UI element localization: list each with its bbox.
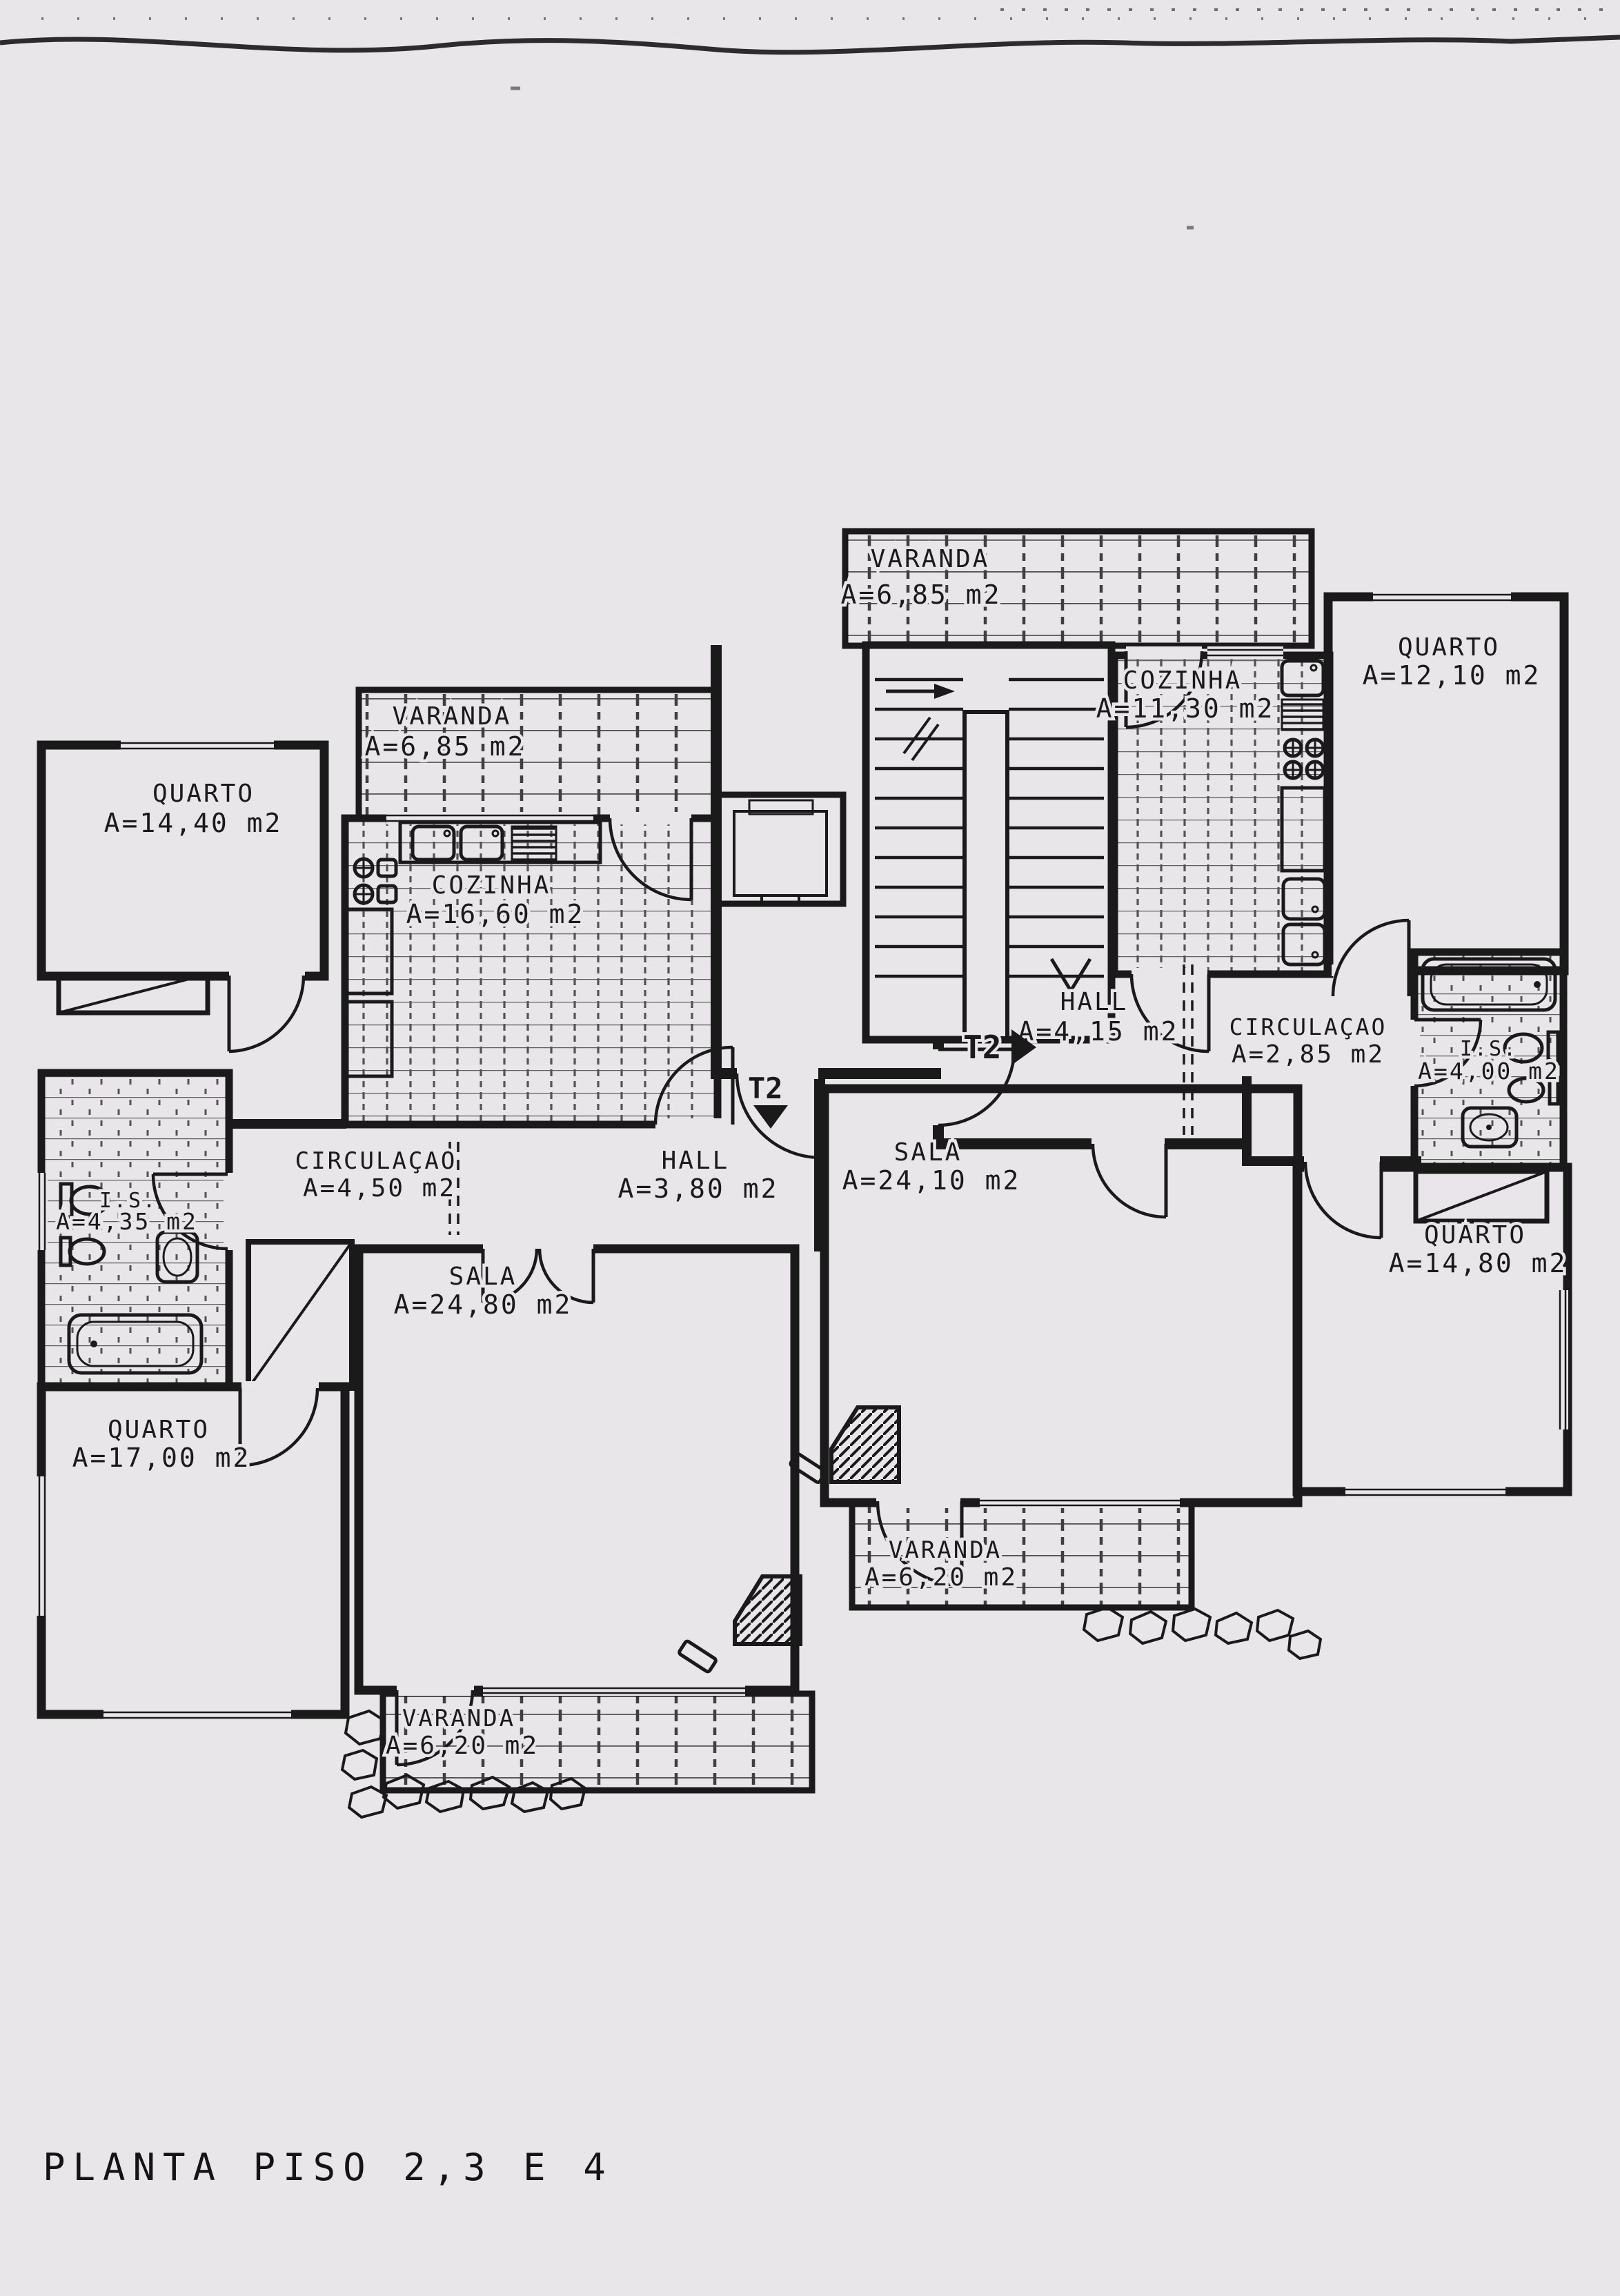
label-sala-left-name: SALA	[449, 1263, 517, 1291]
circ-right-left-wall	[1242, 1076, 1252, 1166]
bathtub-drain-left	[90, 1340, 97, 1347]
scan-edge-line	[0, 37, 1620, 52]
label-varanda-bottom-left-name: VARANDA	[402, 1705, 515, 1732]
label-sala-right-area: A=24,10 m2	[842, 1165, 1021, 1196]
chimney-sala-right	[790, 1407, 899, 1483]
label-quarto-right-area: A=14,80 m2	[1389, 1248, 1568, 1278]
elevator-car	[734, 811, 827, 895]
circ-right-bottom-wall-a	[1242, 1156, 1304, 1166]
closet-quarto-right-diagonal	[1416, 1171, 1547, 1221]
label-sala-right-name: SALA	[894, 1138, 962, 1167]
label-hall-right-area: A=4,15 m2	[1018, 1016, 1179, 1047]
label-circulacao-left-name: CIRCULAÇAO	[295, 1147, 457, 1175]
label-sala-left-area: A=24,80 m2	[394, 1289, 573, 1320]
closet-sala-left-diagonal	[248, 1242, 352, 1388]
door-quarto-right	[1305, 1162, 1381, 1238]
stair-treads-right-flight	[1009, 680, 1104, 976]
stair-up-arrow-head	[934, 684, 955, 699]
vent-left	[678, 1641, 717, 1673]
door-quarto-bottom-left	[240, 1388, 317, 1465]
label-quarto-bottom-left-name: QUARTO	[108, 1416, 210, 1444]
sink-drainer-r	[1282, 700, 1323, 730]
label-cozinha-left-name: COZINHA	[432, 871, 551, 900]
label-circulacao-left-area: A=4,50 m2	[303, 1174, 456, 1203]
label-hall-left-name: HALL	[662, 1147, 730, 1175]
stair-treads-left-flight	[875, 680, 963, 976]
room-labels: VARANDA A=6,85 m2 COZINHA A=11,30 m2 QUA…	[56, 545, 1567, 1760]
label-varanda-top-name: VARANDA	[871, 545, 990, 573]
rock-garden-bottom-right	[1084, 1607, 1321, 1659]
label-hall-left-area: A=3,80 m2	[618, 1174, 779, 1204]
label-hall-right-name: HALL	[1060, 988, 1129, 1016]
floor-plan-drawing: VARANDA A=6,85 m2 COZINHA A=11,30 m2 QUA…	[0, 0, 1620, 2296]
scanned-floor-plan-page: VARANDA A=6,85 m2 COZINHA A=11,30 m2 QUA…	[0, 0, 1620, 2296]
corridor-left-top-wall	[229, 1119, 346, 1129]
label-circulacao-right-name: CIRCULAÇAO	[1229, 1013, 1387, 1040]
label-quarto-right-name: QUARTO	[1424, 1221, 1526, 1249]
t2-right-label: T2	[963, 1029, 1001, 1066]
label-quarto-top-right-area: A=12,10 m2	[1363, 660, 1541, 691]
door-quarto-top-right	[1333, 920, 1409, 996]
door-quarto-left	[229, 976, 304, 1051]
label-cozinha-right-name: COZINHA	[1123, 666, 1243, 695]
label-varanda-bottom-right-area: A=6,20 m2	[865, 1563, 1018, 1592]
label-varanda-bottom-left-area: A=6,20 m2	[386, 1732, 539, 1760]
label-is-left-area: A=4,35 m2	[56, 1208, 198, 1235]
label-quarto-bottom-left-area: A=17,00 m2	[72, 1443, 251, 1473]
hall-right-bottom-wall-b	[1165, 1138, 1247, 1149]
scan-speckles	[511, 88, 1194, 228]
bathtub-drain-right	[1534, 981, 1541, 988]
label-quarto-top-right-name: QUARTO	[1398, 633, 1500, 662]
drawing-title: PLANTA PISO 2,3 E 4	[43, 2146, 613, 2189]
sink-drainer	[512, 827, 556, 860]
cozinha-left-tiles	[345, 818, 718, 1125]
label-varanda-bottom-right-name: VARANDA	[889, 1536, 1002, 1564]
label-quarto-left-name: QUARTO	[152, 780, 255, 808]
stair-stringer	[965, 712, 1007, 1038]
chimney-sala-left	[678, 1576, 800, 1672]
t2-left-arrow-icon	[753, 1105, 788, 1129]
scan-artifacts	[0, 10, 1620, 228]
walls	[41, 531, 1568, 1790]
landing-bottom-wall-b	[818, 1068, 941, 1079]
label-circulacao-right-area: A=2,85 m2	[1232, 1040, 1385, 1069]
door-hall-right-sala	[1093, 1144, 1166, 1217]
t2-left-label: T2	[748, 1071, 783, 1105]
label-quarto-left-area: A=14,40 m2	[104, 808, 283, 838]
stair-core	[718, 680, 1104, 1038]
label-varanda-top-area: A=6,85 m2	[841, 580, 1002, 610]
label-cozinha-right-area: A=11,30 m2	[1096, 693, 1275, 724]
label-cozinha-left-area: A=16,60 m2	[406, 899, 585, 929]
label-varanda-left-area: A=6,85 m2	[365, 731, 526, 762]
label-is-right-area: A=4,00 m2	[1418, 1058, 1560, 1085]
label-varanda-left-name: VARANDA	[393, 702, 512, 731]
circ-right-bottom-wall-b	[1380, 1156, 1421, 1166]
